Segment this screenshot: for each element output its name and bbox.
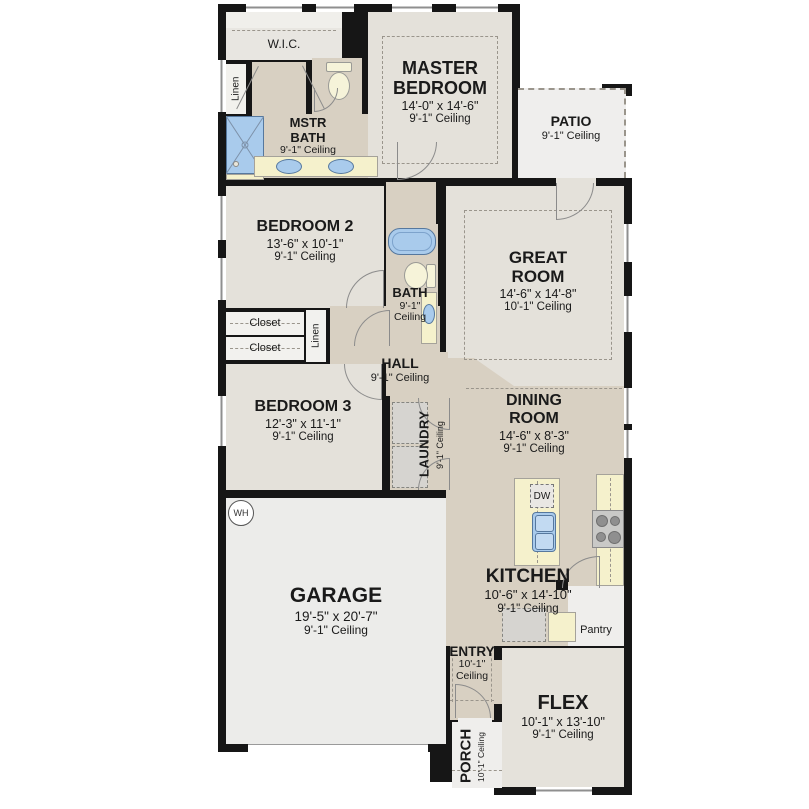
room-name: Closet xyxy=(249,342,280,354)
wic-label: W.I.C. xyxy=(226,38,342,51)
window xyxy=(316,4,354,12)
stove xyxy=(592,510,624,548)
patio-label: PATIO 9'-1" Ceiling xyxy=(518,114,624,142)
kitchen-label: KITCHEN 10'-6" x 14'-10" 9'-1" Ceiling xyxy=(448,566,608,616)
porch-ceiling-label: 10'-1" Ceiling xyxy=(476,728,486,786)
laundry-ceiling-label: 9'-1" Ceiling xyxy=(434,402,446,488)
window xyxy=(624,224,632,262)
window xyxy=(536,787,592,795)
floor-plan: DW WH W.I.C. Linen xyxy=(0,0,809,809)
water-heater: WH xyxy=(228,500,254,526)
entry-door-opening xyxy=(458,718,492,724)
pantry-label: Pantry xyxy=(568,624,624,636)
closet-a-label: Closet xyxy=(226,317,304,329)
dishwasher-label: DW xyxy=(534,491,551,502)
bath-label: BATH 9'-1" Ceiling xyxy=(386,286,434,324)
room-ceiling: 9'-1" Ceiling xyxy=(435,421,445,469)
linen-hall-label: Linen xyxy=(307,312,325,360)
master-vanity-counter xyxy=(254,156,378,177)
window xyxy=(218,60,226,112)
laundry-label: LAUNDRY xyxy=(416,398,432,490)
window xyxy=(218,396,226,446)
garage-door-opening xyxy=(248,744,428,753)
porch-label: PORCH xyxy=(458,726,474,786)
window xyxy=(456,4,498,12)
mstr-bath-label: MSTR BATH 9'-1" Ceiling xyxy=(270,116,346,157)
window xyxy=(218,258,226,300)
kitchen-sink xyxy=(532,512,556,552)
great-room-label: GREAT ROOM 14'-6" x 14'-8" 10'-1" Ceilin… xyxy=(458,248,618,314)
master-toilet-tank xyxy=(326,62,352,72)
bathtub xyxy=(388,228,436,255)
master-bedroom-label: MASTER BEDROOM 14'-0" x 14'-6" 9'-1" Cei… xyxy=(374,58,506,126)
window xyxy=(246,4,302,12)
window xyxy=(624,388,632,424)
window xyxy=(624,430,632,458)
wic-shelf xyxy=(226,12,342,28)
bedroom3-label: BEDROOM 3 12'-3" x 11'-1" 9'-1" Ceiling xyxy=(233,398,373,444)
great-dining-transition-dash xyxy=(466,388,622,389)
flex-label: FLEX 10'-1" x 13'-10" 9'-1" Ceiling xyxy=(508,692,618,742)
room-name: LAUNDRY xyxy=(417,411,432,478)
wic-rod-line xyxy=(232,30,336,31)
dining-room-label: DINING ROOM 14'-6" x 8'-3" 9'-1" Ceiling xyxy=(464,392,604,456)
linen-top-label: Linen xyxy=(227,66,245,112)
room-name: W.I.C. xyxy=(268,37,301,51)
water-heater-label: WH xyxy=(234,508,249,518)
master-sink-left xyxy=(276,159,302,174)
entry-label: ENTRY 10'-1" Ceiling xyxy=(448,644,496,683)
entry-kitchen-opening xyxy=(452,636,492,642)
room-ceiling: 10'-1" Ceiling xyxy=(476,732,486,782)
room-name: Linen xyxy=(231,77,242,101)
master-sink-right xyxy=(328,159,354,174)
mstr-bath-doorway-floor xyxy=(252,62,306,118)
window xyxy=(218,196,226,240)
hall-label: HALL 9'-1" Ceiling xyxy=(342,356,458,384)
window xyxy=(624,296,632,332)
room-name: PORCH xyxy=(458,729,475,783)
bedroom2-label: BEDROOM 2 13'-6" x 10'-1" 9'-1" Ceiling xyxy=(235,218,375,264)
window xyxy=(392,4,432,12)
room-name: Pantry xyxy=(580,624,612,636)
dishwasher: DW xyxy=(530,484,554,508)
room-name: Closet xyxy=(249,317,280,329)
room-name: Linen xyxy=(311,324,322,348)
vestibule-floor xyxy=(386,182,436,226)
closet-b-label: Closet xyxy=(226,342,304,354)
garage-label: GARAGE 19'-5" x 20'-7" 9'-1" Ceiling xyxy=(246,584,426,637)
